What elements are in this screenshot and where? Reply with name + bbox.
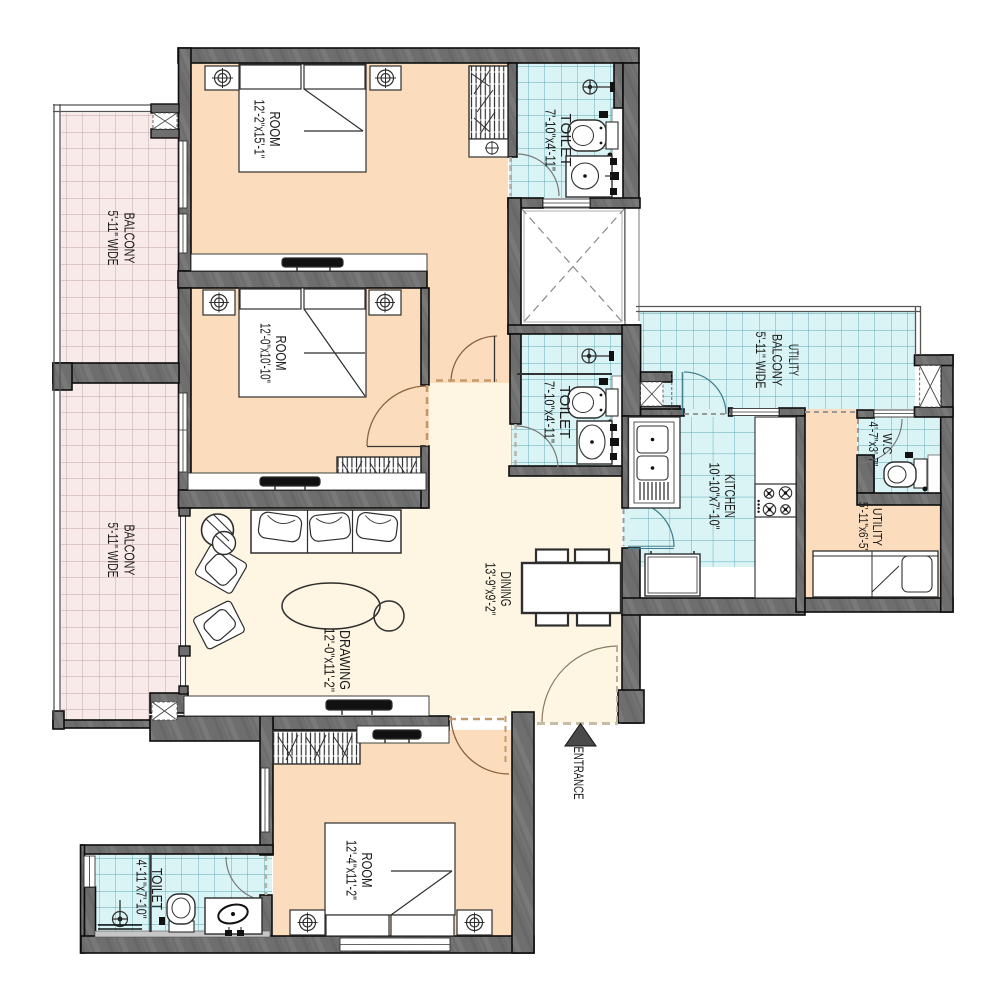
svg-text:KITCHEN: KITCHEN <box>721 474 738 518</box>
svg-text:5'-11" WIDE: 5'-11" WIDE <box>753 332 769 389</box>
svg-text:DRAWING: DRAWING <box>336 630 353 690</box>
svg-text:BALCONY: BALCONY <box>121 525 138 576</box>
svg-text:TOILET: TOILET <box>556 386 573 439</box>
svg-text:TOILET: TOILET <box>148 868 165 910</box>
svg-text:12'-4"x11'-2": 12'-4"x11'-2" <box>343 840 360 900</box>
svg-text:7'-10"x4'-11": 7'-10"x4'-11" <box>541 381 558 443</box>
svg-text:UTILITY: UTILITY <box>870 508 884 547</box>
svg-text:4'-7"x3'-7": 4'-7"x3'-7" <box>866 422 880 467</box>
svg-text:BALCONY: BALCONY <box>770 334 786 387</box>
svg-text:ROOM: ROOM <box>358 853 375 888</box>
svg-text:TOILET: TOILET <box>557 114 574 167</box>
svg-text:10'-10"x7'-10": 10'-10"x7'-10" <box>706 463 723 530</box>
svg-text:5'-11"x6'-5": 5'-11"x6'-5" <box>856 502 870 552</box>
svg-text:12'-2"x15'-1": 12'-2"x15'-1" <box>251 100 268 159</box>
svg-text:12'-0"x11'-2": 12'-0"x11'-2" <box>321 628 338 692</box>
svg-text:4'-11"x7'-10": 4'-11"x7'-10" <box>133 860 150 919</box>
svg-text:12'-0"x10'-10": 12'-0"x10'-10" <box>257 323 274 383</box>
svg-text:W.C: W.C <box>880 434 894 455</box>
svg-text:ROOM: ROOM <box>272 336 289 371</box>
svg-text:13'-9"x9'-2": 13'-9"x9'-2" <box>482 563 499 616</box>
svg-text:ENTRANCE: ENTRANCE <box>571 747 587 800</box>
svg-text:5'-11" WIDE: 5'-11" WIDE <box>104 523 121 578</box>
svg-text:ROOM: ROOM <box>266 112 283 147</box>
svg-text:7'-10"x4'-11": 7'-10"x4'-11" <box>542 109 559 171</box>
svg-text:UTILITY: UTILITY <box>786 344 802 376</box>
svg-text:5'-11" WIDE: 5'-11" WIDE <box>104 211 121 266</box>
svg-text:DINING: DINING <box>497 572 514 607</box>
svg-text:BALCONY: BALCONY <box>121 213 138 264</box>
